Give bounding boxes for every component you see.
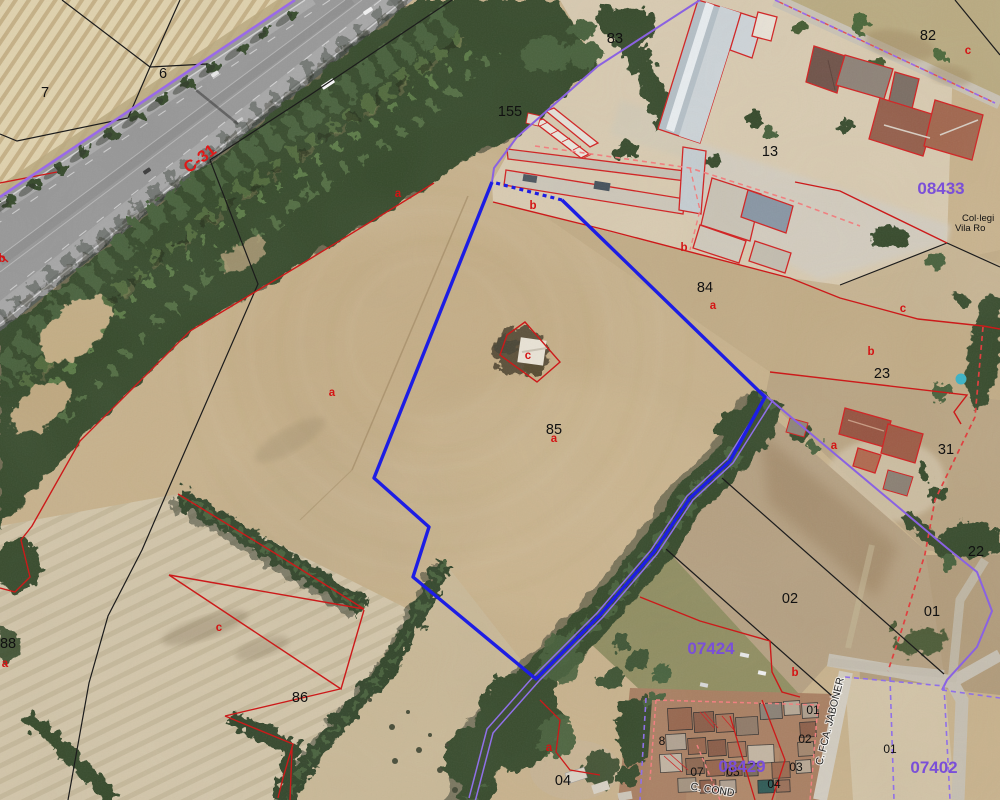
svg-text:01: 01 (924, 604, 940, 620)
svg-text:a: a (395, 188, 402, 200)
svg-text:86: 86 (292, 690, 308, 706)
svg-text:b: b (680, 242, 687, 254)
svg-text:08429: 08429 (718, 757, 765, 776)
svg-text:6: 6 (159, 66, 167, 82)
svg-text:31: 31 (938, 442, 954, 458)
svg-text:02: 02 (782, 591, 798, 607)
svg-text:03: 03 (789, 760, 803, 774)
svg-text:c: c (965, 45, 972, 57)
svg-text:04: 04 (555, 773, 571, 789)
svg-text:82: 82 (920, 28, 936, 44)
svg-text:b: b (867, 346, 874, 358)
svg-text:83: 83 (607, 31, 623, 47)
svg-text:01: 01 (806, 703, 820, 717)
svg-text:84: 84 (697, 280, 713, 296)
svg-text:04: 04 (767, 777, 781, 791)
svg-text:a: a (551, 433, 558, 445)
svg-text:b: b (791, 667, 798, 679)
svg-text:c: c (525, 350, 532, 362)
svg-text:02: 02 (798, 732, 812, 746)
svg-text:c: c (900, 303, 907, 315)
svg-text:7: 7 (41, 85, 49, 101)
svg-text:8: 8 (659, 734, 666, 748)
svg-text:a: a (329, 387, 336, 399)
svg-text:Vila Ro: Vila Ro (955, 223, 985, 234)
svg-text:a: a (2, 658, 9, 670)
svg-text:155: 155 (498, 104, 522, 120)
svg-text:23: 23 (874, 366, 890, 382)
svg-text:a: a (710, 300, 717, 312)
svg-text:13: 13 (762, 144, 778, 160)
svg-text:c: c (216, 622, 223, 634)
svg-text:07: 07 (690, 765, 704, 779)
svg-text:a: a (546, 742, 553, 754)
svg-text:22: 22 (968, 544, 984, 560)
svg-text:b: b (0, 253, 6, 265)
svg-text:08433: 08433 (917, 179, 964, 198)
svg-text:a: a (831, 440, 838, 452)
svg-text:88: 88 (0, 636, 16, 652)
svg-text:01: 01 (883, 742, 897, 756)
svg-text:07424: 07424 (687, 639, 735, 658)
svg-text:07402: 07402 (910, 758, 957, 777)
svg-text:b: b (529, 200, 536, 212)
